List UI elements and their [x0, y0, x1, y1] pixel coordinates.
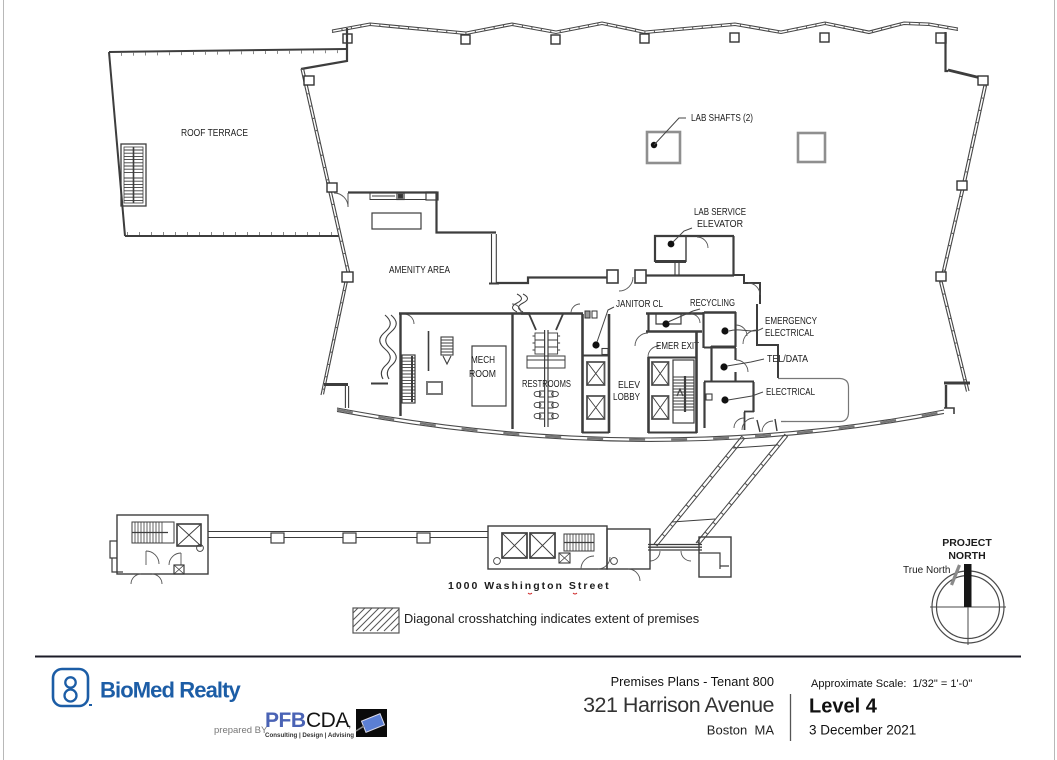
svg-text:Consulting | Design | Advising: Consulting | Design | Advising: [265, 732, 354, 739]
svg-text:EMERGENCY: EMERGENCY: [765, 316, 817, 327]
svg-text:LAB SERVICE: LAB SERVICE: [694, 207, 746, 218]
svg-text:ROOF TERRACE: ROOF TERRACE: [181, 128, 248, 139]
svg-text:ROOM: ROOM: [469, 369, 496, 380]
svg-text:LOBBY: LOBBY: [613, 392, 640, 403]
svg-text:ELEVATOR: ELEVATOR: [697, 219, 743, 230]
svg-text:3 December 2021: 3 December 2021: [809, 723, 916, 738]
svg-text:Premises Plans - Tenant 800: Premises Plans - Tenant 800: [611, 674, 774, 689]
svg-text:MECH: MECH: [471, 355, 495, 366]
svg-text:LAB SHAFTS (2): LAB SHAFTS (2): [691, 113, 753, 124]
svg-text:RESTROOMS: RESTROOMS: [522, 379, 571, 390]
svg-text:,: ,: [348, 716, 351, 730]
svg-text:BioMed Realty: BioMed Realty: [100, 678, 242, 703]
svg-text:RECYCLING: RECYCLING: [690, 298, 735, 309]
svg-text:Approximate Scale: 1/32" = 1': Approximate Scale: 1/32" = 1'-0": [811, 678, 972, 690]
svg-text:Level 4: Level 4: [809, 696, 878, 718]
svg-text:TEL/DATA: TEL/DATA: [767, 354, 808, 365]
svg-text:PROJECT: PROJECT: [942, 537, 992, 549]
svg-text:321 Harrison Avenue: 321 Harrison Avenue: [583, 693, 774, 717]
svg-text:PFB: PFB: [265, 709, 306, 732]
svg-text:Diagonal crosshatching indicat: Diagonal crosshatching indicates extent …: [404, 611, 699, 626]
svg-text:ELEV: ELEV: [618, 380, 640, 391]
svg-text:1000 Washington Street: 1000 Washington Street: [448, 580, 611, 592]
svg-text:prepared BY: prepared BY: [214, 725, 268, 736]
svg-text:True North: True North: [903, 565, 950, 576]
svg-text:CDA: CDA: [306, 709, 349, 732]
svg-text:ELECTRICAL: ELECTRICAL: [765, 328, 814, 339]
svg-text:AMENITY AREA: AMENITY AREA: [389, 265, 450, 276]
svg-text:EMER EXIT: EMER EXIT: [656, 341, 699, 352]
svg-text:ELECTRICAL: ELECTRICAL: [766, 387, 815, 398]
svg-text:Boston MA: Boston MA: [707, 723, 775, 738]
svg-text:JANITOR CL: JANITOR CL: [616, 299, 663, 310]
svg-text:NORTH: NORTH: [948, 550, 985, 562]
